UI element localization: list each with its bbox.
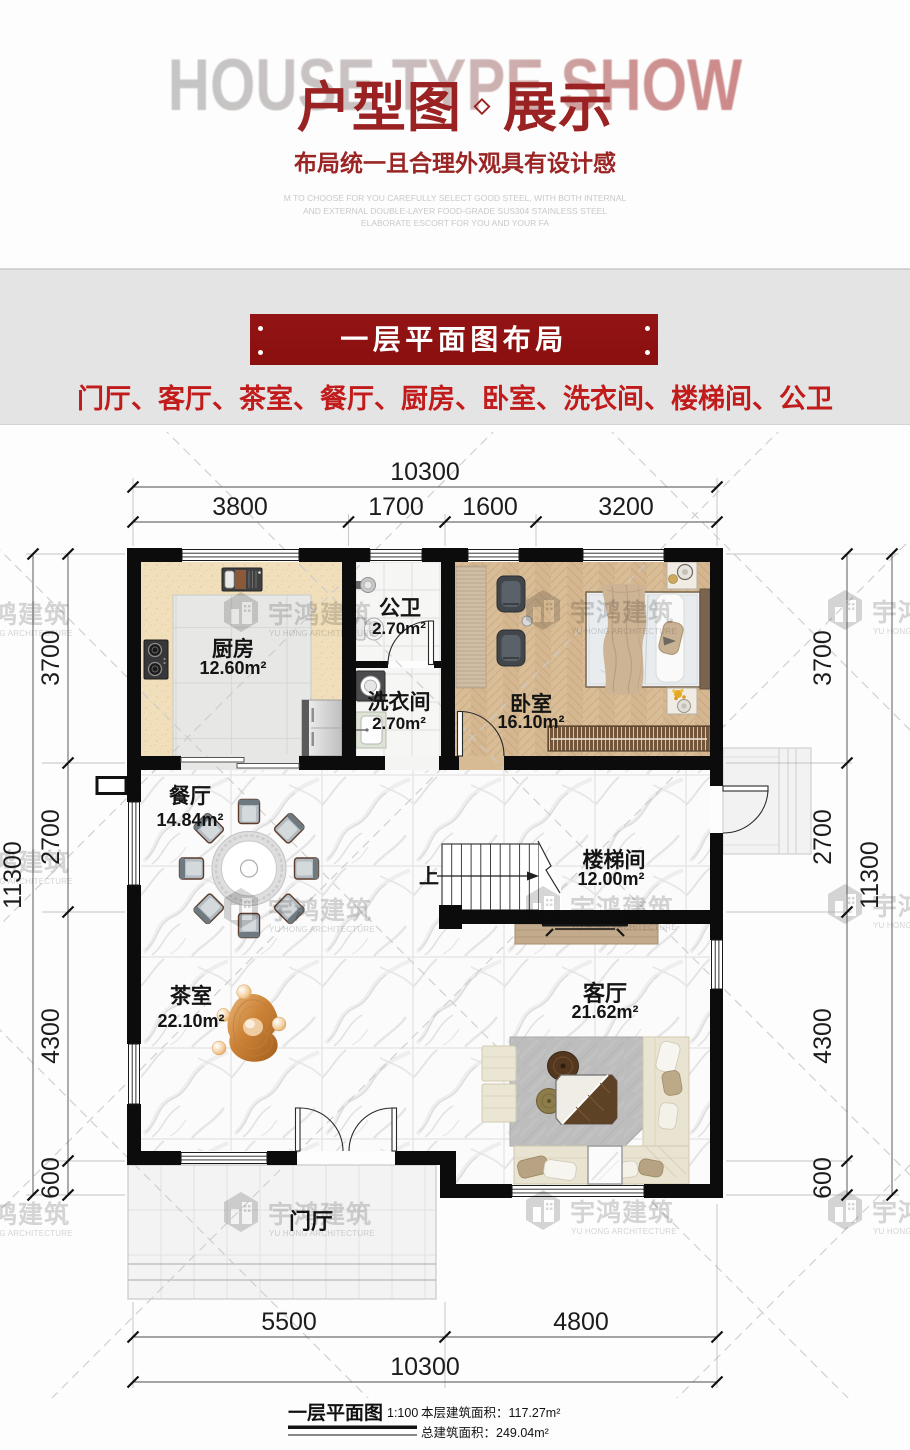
svg-text:1600: 1600 <box>462 493 518 521</box>
svg-text:5500: 5500 <box>261 1308 317 1336</box>
svg-text:2.70m²: 2.70m² <box>372 619 426 638</box>
svg-text:2.70m²: 2.70m² <box>372 714 426 733</box>
svg-text:22.10m²: 22.10m² <box>157 1011 224 1031</box>
svg-text:10300: 10300 <box>390 1353 460 1381</box>
svg-text:4300: 4300 <box>37 1008 65 1064</box>
svg-text:3200: 3200 <box>598 493 654 521</box>
svg-text:2700: 2700 <box>37 809 65 865</box>
svg-text:1700: 1700 <box>368 493 424 521</box>
svg-text:总建筑面积：249.04m²: 总建筑面积：249.04m² <box>421 1425 549 1440</box>
svg-text:洗衣间: 洗衣间 <box>368 690 431 714</box>
svg-text:餐厅: 餐厅 <box>169 784 211 808</box>
svg-text:11300: 11300 <box>0 841 27 909</box>
svg-text:600: 600 <box>37 1157 65 1199</box>
svg-text:21.62m²: 21.62m² <box>571 1002 638 1022</box>
svg-text:4800: 4800 <box>553 1308 609 1336</box>
svg-text:600: 600 <box>809 1157 837 1199</box>
svg-text:本层建筑面积：117.27m²: 本层建筑面积：117.27m² <box>421 1405 560 1420</box>
svg-text:4300: 4300 <box>809 1008 837 1064</box>
svg-text:3800: 3800 <box>212 493 268 521</box>
svg-text:3700: 3700 <box>809 630 837 686</box>
svg-text:2700: 2700 <box>809 809 837 865</box>
svg-text:12.60m²: 12.60m² <box>199 658 266 678</box>
svg-text:茶室: 茶室 <box>170 984 212 1008</box>
svg-text:12.00m²: 12.00m² <box>577 869 644 889</box>
svg-text:16.10m²: 16.10m² <box>497 712 564 732</box>
svg-text:14.84m²: 14.84m² <box>156 810 223 830</box>
svg-text:10300: 10300 <box>390 458 460 486</box>
svg-text:3700: 3700 <box>37 630 65 686</box>
svg-text:上: 上 <box>419 865 439 888</box>
svg-text:公卫: 公卫 <box>379 597 421 620</box>
svg-text:1:100: 1:100 <box>387 1406 418 1420</box>
svg-text:一层平面图: 一层平面图 <box>288 1402 383 1424</box>
svg-text:11300: 11300 <box>856 841 884 909</box>
